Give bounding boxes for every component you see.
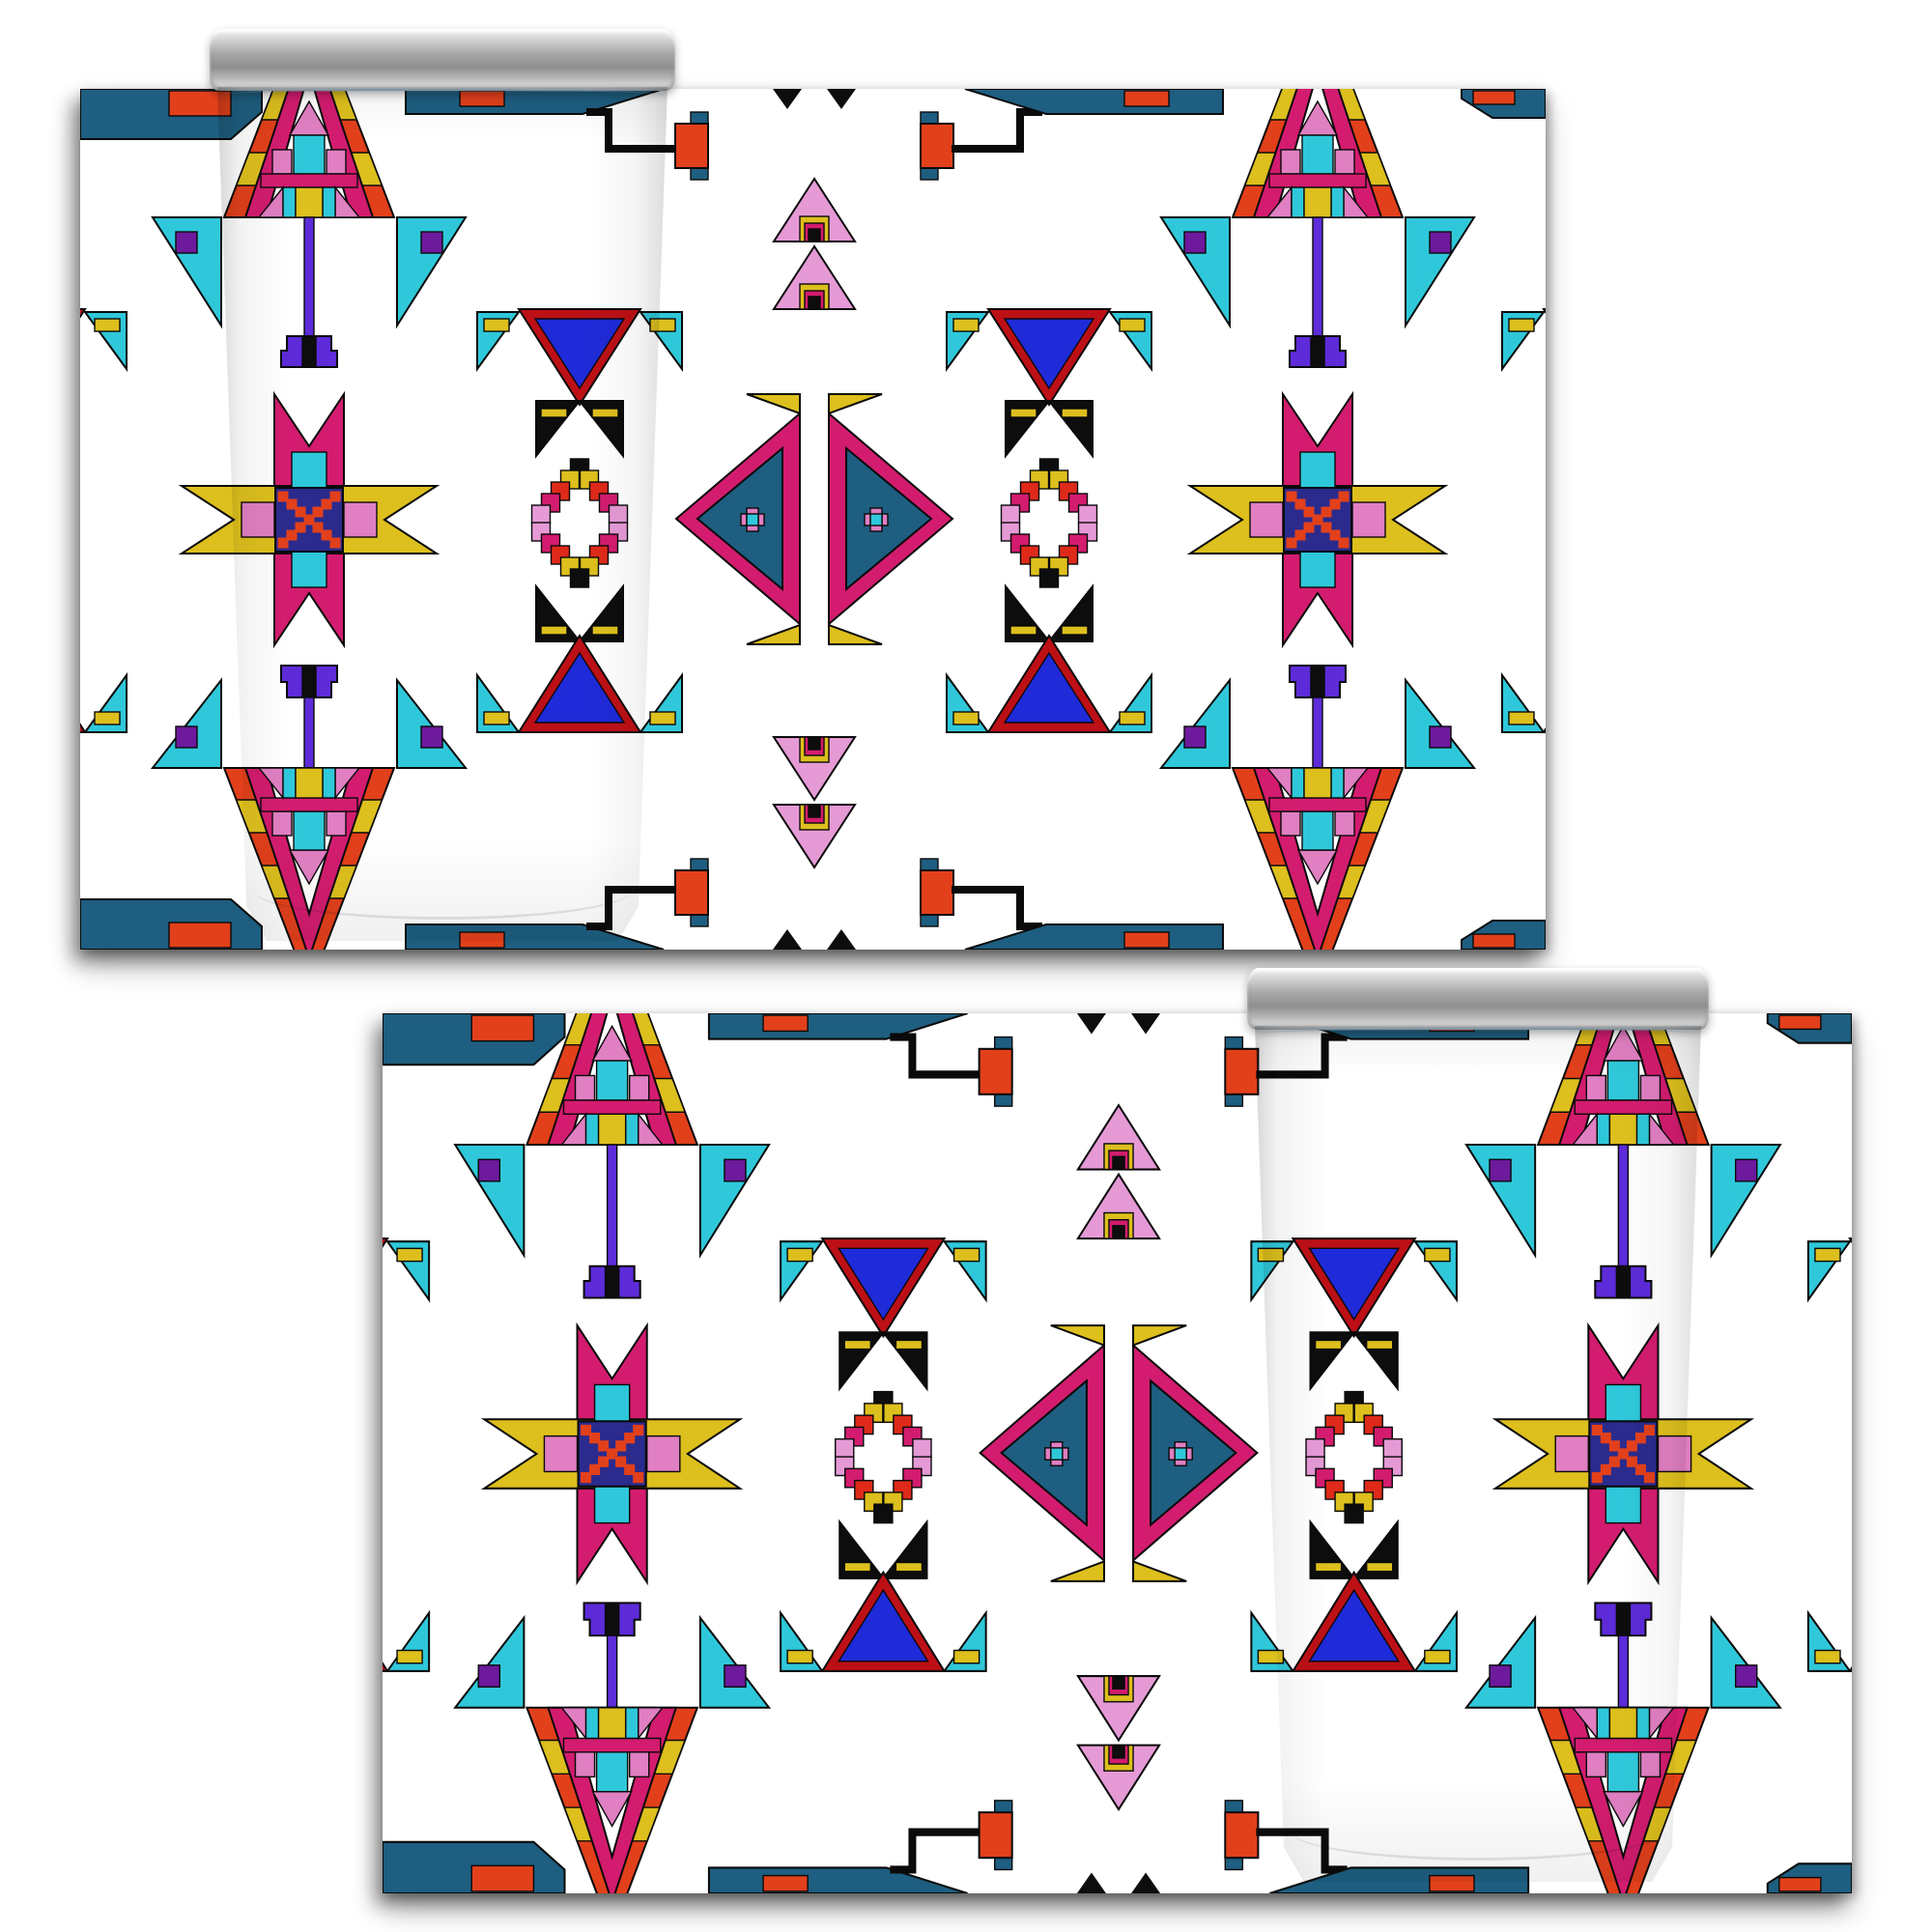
mockup-page bbox=[0, 0, 1932, 1932]
pattern-artwork bbox=[80, 89, 1546, 950]
pattern-artwork bbox=[383, 1013, 1852, 1893]
design-panel-bottom bbox=[383, 1013, 1852, 1893]
design-panel-top bbox=[80, 89, 1546, 950]
tumbler-rim-steel bbox=[210, 29, 675, 91]
